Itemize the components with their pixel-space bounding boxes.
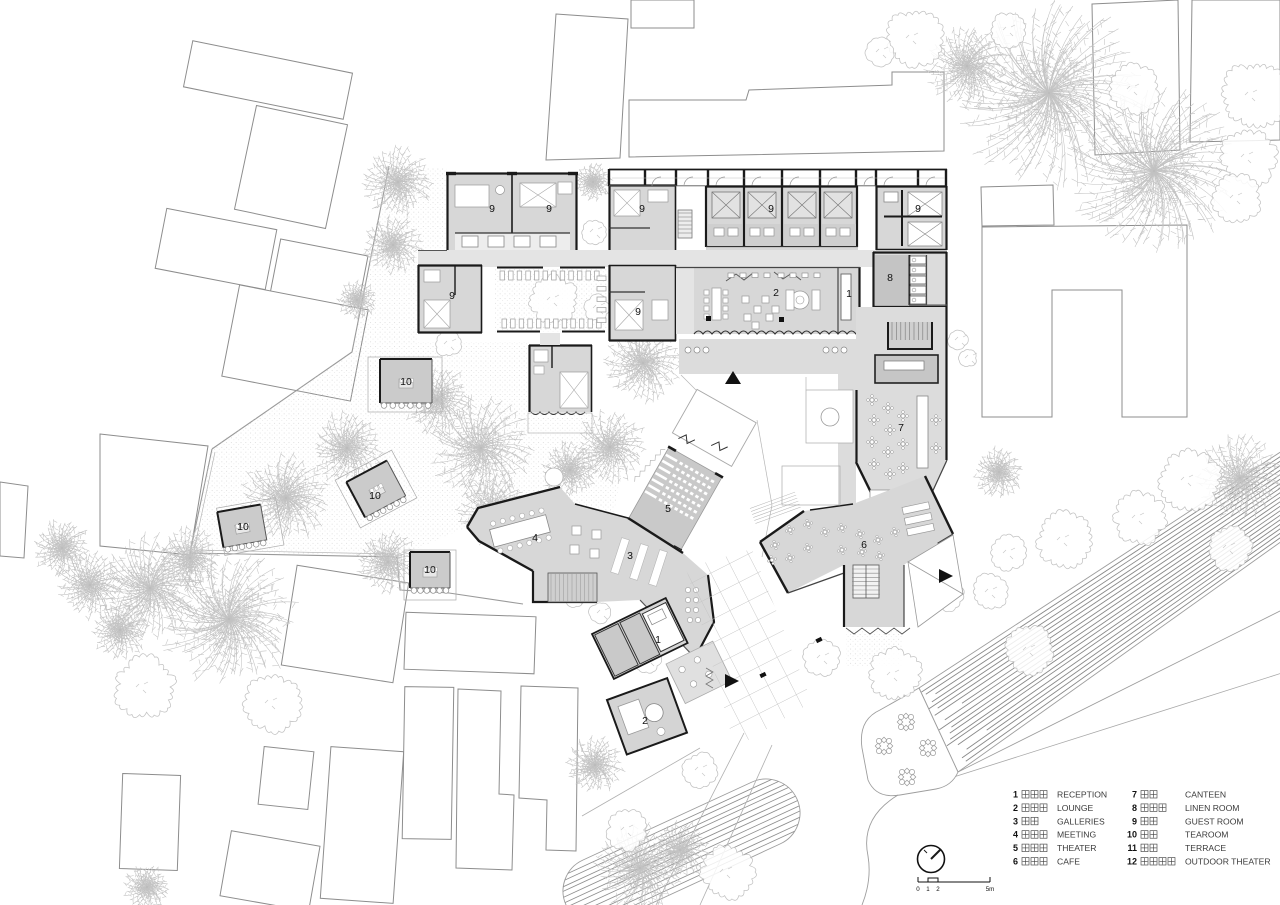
svg-text:8: 8 bbox=[1132, 803, 1137, 813]
svg-text:GUEST ROOM: GUEST ROOM bbox=[1185, 816, 1244, 826]
svg-text:9: 9 bbox=[768, 203, 774, 215]
svg-text:10: 10 bbox=[424, 564, 436, 576]
svg-text:9: 9 bbox=[1132, 816, 1137, 826]
svg-text:1: 1 bbox=[846, 288, 852, 300]
svg-text:7: 7 bbox=[1132, 790, 1137, 800]
svg-text:4: 4 bbox=[532, 532, 538, 544]
svg-text:6: 6 bbox=[1013, 857, 1018, 867]
svg-text:4: 4 bbox=[1013, 830, 1018, 840]
svg-text:CAFE: CAFE bbox=[1057, 857, 1080, 867]
svg-text:OUTDOOR THEATER: OUTDOOR THEATER bbox=[1185, 857, 1271, 867]
svg-text:0: 0 bbox=[916, 886, 920, 893]
svg-text:THEATER: THEATER bbox=[1057, 843, 1096, 853]
svg-text:8: 8 bbox=[887, 272, 893, 284]
svg-text:2: 2 bbox=[642, 715, 648, 727]
svg-text:9: 9 bbox=[639, 203, 645, 215]
svg-text:2: 2 bbox=[1013, 803, 1018, 813]
svg-text:1: 1 bbox=[926, 886, 930, 893]
svg-text:11: 11 bbox=[1127, 843, 1137, 853]
svg-text:MEETING: MEETING bbox=[1057, 830, 1096, 840]
svg-text:5: 5 bbox=[665, 503, 671, 515]
svg-text:9: 9 bbox=[489, 203, 495, 215]
svg-text:5m: 5m bbox=[986, 886, 995, 893]
svg-text:RECEPTION: RECEPTION bbox=[1057, 790, 1107, 800]
svg-text:12: 12 bbox=[1127, 857, 1137, 867]
svg-text:9: 9 bbox=[449, 290, 455, 302]
svg-text:3: 3 bbox=[627, 550, 633, 562]
svg-text:10: 10 bbox=[369, 490, 381, 502]
svg-text:1: 1 bbox=[1013, 790, 1018, 800]
svg-text:2: 2 bbox=[936, 886, 940, 893]
svg-text:7: 7 bbox=[898, 422, 904, 434]
svg-text:3: 3 bbox=[1013, 816, 1018, 826]
svg-text:CANTEEN: CANTEEN bbox=[1185, 790, 1226, 800]
svg-text:TERRACE: TERRACE bbox=[1185, 843, 1226, 853]
svg-text:GALLERIES: GALLERIES bbox=[1057, 816, 1105, 826]
svg-text:6: 6 bbox=[861, 539, 867, 551]
svg-text:TEAROOM: TEAROOM bbox=[1185, 830, 1228, 840]
svg-text:9: 9 bbox=[635, 306, 641, 318]
svg-text:10: 10 bbox=[237, 521, 249, 533]
svg-text:10: 10 bbox=[1127, 830, 1137, 840]
svg-text:5: 5 bbox=[1013, 843, 1018, 853]
svg-text:LINEN ROOM: LINEN ROOM bbox=[1185, 803, 1239, 813]
svg-text:10: 10 bbox=[400, 376, 412, 388]
svg-text:9: 9 bbox=[546, 203, 552, 215]
svg-text:LOUNGE: LOUNGE bbox=[1057, 803, 1094, 813]
svg-text:2: 2 bbox=[773, 287, 779, 299]
svg-text:9: 9 bbox=[915, 203, 921, 215]
svg-text:1: 1 bbox=[655, 634, 661, 646]
